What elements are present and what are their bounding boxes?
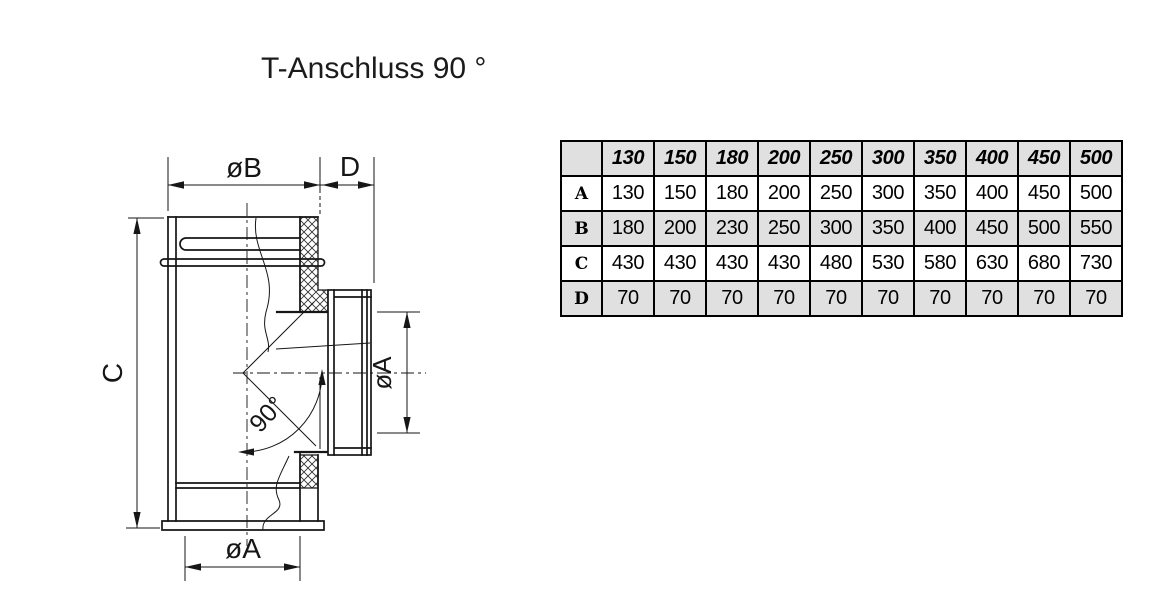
table-corner-cell <box>561 141 602 176</box>
table-cell: 70 <box>862 281 914 316</box>
table-cell: 200 <box>758 176 810 211</box>
insulation-hatch <box>300 217 328 488</box>
table-cell: 250 <box>758 211 810 246</box>
table-cell: 550 <box>1070 211 1122 246</box>
table-cell: 680 <box>1018 246 1070 281</box>
table-cell: 350 <box>862 211 914 246</box>
table-cell: 530 <box>862 246 914 281</box>
table-cell: 70 <box>654 281 706 316</box>
table-header-row: 130 150 180 200 250 300 350 400 450 500 <box>561 141 1122 176</box>
column-header-400: 400 <box>966 141 1018 176</box>
bottom-rim <box>162 521 324 530</box>
table-cell: 580 <box>914 246 966 281</box>
hatch-lower-wall <box>300 455 318 488</box>
table-cell: 450 <box>1018 176 1070 211</box>
dim-label-branch-offset: D <box>340 151 360 182</box>
table-cell: 450 <box>966 211 1018 246</box>
table-cell: 70 <box>966 281 1018 316</box>
column-header-200: 200 <box>758 141 810 176</box>
technical-drawing: øB D C øA øA 90° <box>80 128 480 602</box>
table-cell: 430 <box>654 246 706 281</box>
dim-label-outer-width: øB <box>226 152 262 183</box>
table-row-b: B 180 200 230 250 300 350 400 450 500 55… <box>561 211 1122 246</box>
branch-socket <box>328 290 371 455</box>
column-header-250: 250 <box>810 141 862 176</box>
table-row-d: D 70 70 70 70 70 70 70 70 70 70 <box>561 281 1122 316</box>
column-header-130: 130 <box>602 141 654 176</box>
table-cell: 70 <box>706 281 758 316</box>
row-label-b: B <box>561 211 602 246</box>
dim-label-height: C <box>97 363 128 383</box>
table-cell: 70 <box>1018 281 1070 316</box>
table-cell: 70 <box>810 281 862 316</box>
table-cell: 300 <box>810 211 862 246</box>
table-cell: 430 <box>758 246 810 281</box>
table-cell: 430 <box>706 246 758 281</box>
table-cell: 70 <box>758 281 810 316</box>
table-cell: 180 <box>602 211 654 246</box>
table-cell: 500 <box>1018 211 1070 246</box>
table-cell: 180 <box>706 176 758 211</box>
table-cell: 400 <box>966 176 1018 211</box>
table-cell: 130 <box>602 176 654 211</box>
table-cell: 300 <box>862 176 914 211</box>
table-row-a: A 130 150 180 200 250 300 350 400 450 50… <box>561 176 1122 211</box>
top-sleeve <box>180 238 300 250</box>
angle-label: 90° <box>244 391 290 438</box>
column-header-350: 350 <box>914 141 966 176</box>
table-cell: 70 <box>602 281 654 316</box>
column-header-450: 450 <box>1018 141 1070 176</box>
column-header-500: 500 <box>1070 141 1122 176</box>
table-cell: 350 <box>914 176 966 211</box>
table-cell: 200 <box>654 211 706 246</box>
table-cell: 430 <box>602 246 654 281</box>
table-cell: 730 <box>1070 246 1122 281</box>
dimension-table: 130 150 180 200 250 300 350 400 450 500 … <box>560 140 1123 317</box>
column-header-150: 150 <box>654 141 706 176</box>
row-label-d: D <box>561 281 602 316</box>
bottom-joint-band <box>176 483 300 488</box>
table-cell: 70 <box>1070 281 1122 316</box>
row-label-a: A <box>561 176 602 211</box>
table-cell: 230 <box>706 211 758 246</box>
row-label-c: C <box>561 246 602 281</box>
column-header-180: 180 <box>706 141 758 176</box>
page-title: T-Anschluss 90 ° <box>261 52 486 86</box>
column-header-300: 300 <box>862 141 914 176</box>
dim-label-bottom-diameter: øA <box>225 533 261 564</box>
dim-label-branch-diameter: øA <box>367 356 397 390</box>
table-cell: 630 <box>966 246 1018 281</box>
table-cell: 400 <box>914 211 966 246</box>
table-cell: 150 <box>654 176 706 211</box>
table-cell: 70 <box>914 281 966 316</box>
table-cell: 480 <box>810 246 862 281</box>
table-cell: 500 <box>1070 176 1122 211</box>
table-row-c: C 430 430 430 430 480 530 580 630 680 73… <box>561 246 1122 281</box>
table-cell: 250 <box>810 176 862 211</box>
